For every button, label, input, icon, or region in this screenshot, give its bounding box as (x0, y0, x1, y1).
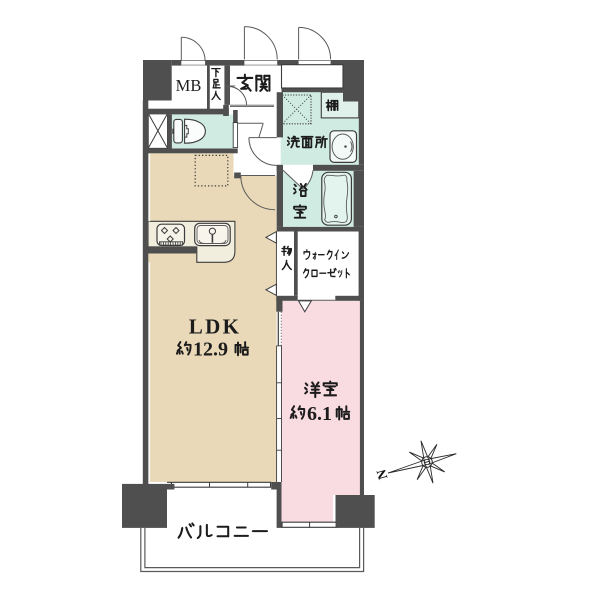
svg-text:MB: MB (176, 76, 202, 95)
svg-text:12.9: 12.9 (193, 339, 228, 361)
svg-text:6.1: 6.1 (307, 403, 332, 425)
svg-text:LDK: LDK (189, 315, 242, 339)
